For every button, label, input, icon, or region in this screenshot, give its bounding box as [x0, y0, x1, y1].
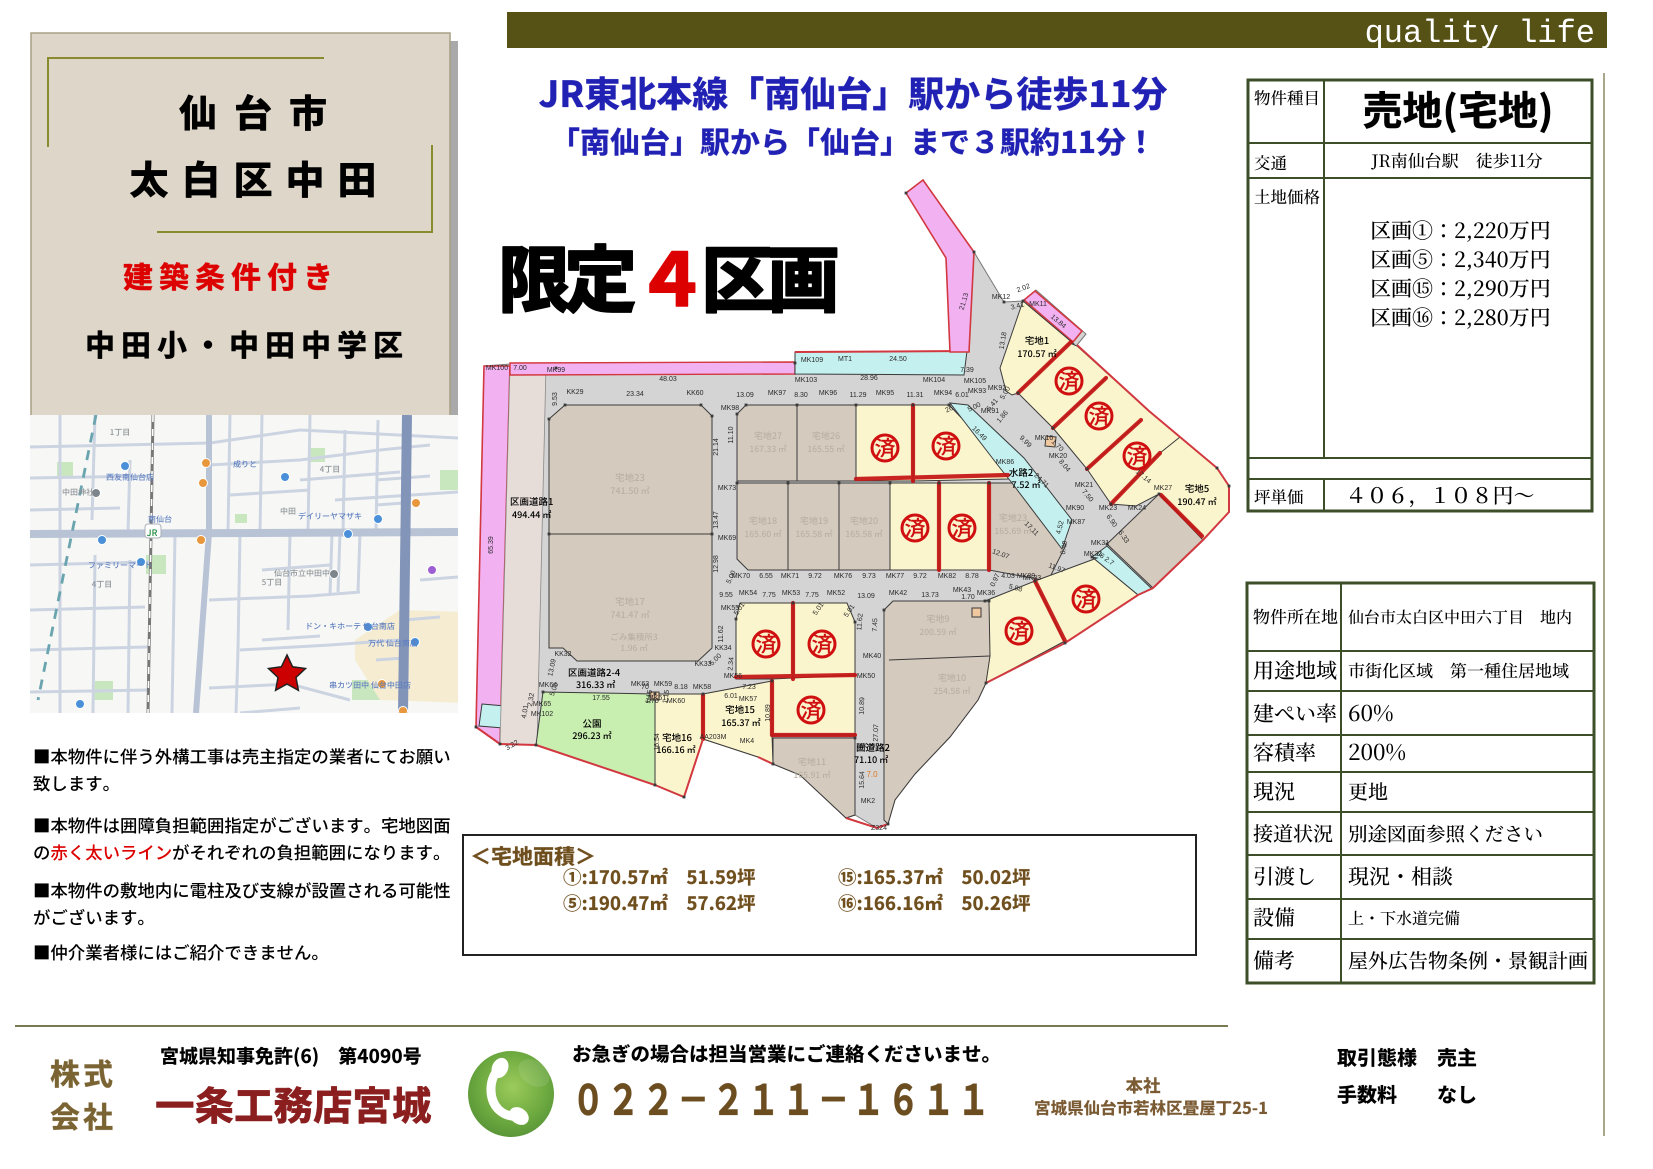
svg-text:21.14: 21.14 — [713, 438, 720, 456]
svg-text:MK4: MK4 — [740, 738, 755, 745]
svg-text:MK73: MK73 — [718, 485, 736, 492]
svg-text:MK99: MK99 — [547, 367, 565, 374]
svg-text:11.62: 11.62 — [856, 613, 864, 631]
svg-text:7.75: 7.75 — [805, 592, 819, 599]
svg-text:MK90: MK90 — [1066, 505, 1084, 512]
svg-text:MK54: MK54 — [739, 590, 757, 597]
svg-text:16.54: 16.54 — [654, 733, 661, 751]
svg-text:MK71: MK71 — [781, 573, 799, 580]
svg-text:12.98: 12.98 — [713, 555, 720, 573]
svg-text:6.01: 6.01 — [955, 392, 969, 399]
svg-text:7.0: 7.0 — [866, 770, 878, 779]
svg-text:MK87: MK87 — [1067, 519, 1085, 526]
svg-text:MK24: MK24 — [1128, 505, 1146, 512]
svg-text:13.09: 13.09 — [736, 392, 754, 399]
svg-text:MK42: MK42 — [889, 590, 907, 597]
svg-text:1.70: 1.70 — [961, 594, 975, 601]
svg-text:11.10: 11.10 — [728, 426, 735, 443]
svg-text:MK21: MK21 — [1075, 482, 1093, 489]
svg-text:KK33: KK33 — [694, 661, 711, 668]
svg-text:MK59: MK59 — [654, 681, 672, 688]
svg-text:10.89: 10.89 — [765, 704, 772, 722]
svg-text:8.78: 8.78 — [965, 573, 979, 580]
svg-text:MK58: MK58 — [693, 684, 711, 691]
svg-text:8.18: 8.18 — [674, 684, 688, 691]
svg-text:11.62: 11.62 — [718, 625, 725, 642]
svg-text:7.00: 7.00 — [513, 365, 527, 372]
svg-text:MK20: MK20 — [1049, 453, 1067, 460]
svg-text:7.75: 7.75 — [762, 592, 776, 599]
svg-text:KK32: KK32 — [554, 651, 571, 658]
svg-text:quality life: quality life — [1365, 15, 1595, 52]
svg-text:MK11: MK11 — [1029, 301, 1047, 308]
svg-text:MK65: MK65 — [533, 701, 551, 708]
svg-text:AA203M: AA203M — [700, 734, 727, 741]
svg-text:MK63: MK63 — [631, 681, 649, 688]
svg-text:65.39: 65.39 — [488, 536, 495, 554]
svg-text:KK29: KK29 — [566, 389, 583, 396]
svg-text:MK95: MK95 — [876, 390, 894, 397]
svg-text:9.72: 9.72 — [913, 573, 927, 580]
svg-text:MK76: MK76 — [834, 573, 852, 580]
svg-text:MK86: MK86 — [996, 459, 1014, 466]
svg-text:MK93: MK93 — [968, 388, 986, 395]
svg-text:MK100: MK100 — [486, 365, 508, 372]
svg-text:17.55: 17.55 — [592, 695, 610, 702]
svg-text:11.31: 11.31 — [907, 392, 924, 399]
svg-text:9.53: 9.53 — [552, 392, 559, 406]
svg-text:MK45: MK45 — [857, 743, 875, 750]
svg-text:MK33: MK33 — [1023, 575, 1041, 582]
svg-text:2.34: 2.34 — [727, 657, 735, 671]
svg-text:24.50: 24.50 — [889, 356, 907, 363]
svg-text:MK53: MK53 — [782, 590, 800, 597]
svg-text:MK36: MK36 — [977, 590, 995, 597]
svg-text:MK12: MK12 — [992, 294, 1010, 301]
svg-text:MK105: MK105 — [964, 378, 986, 385]
svg-text:9.55: 9.55 — [719, 592, 733, 599]
svg-text:MK56: MK56 — [724, 673, 742, 680]
svg-text:MK16: MK16 — [1035, 435, 1053, 442]
svg-text:27.07: 27.07 — [873, 724, 881, 742]
svg-text:MK43: MK43 — [953, 587, 971, 594]
svg-text:MK50: MK50 — [857, 673, 875, 680]
svg-text:2.02: 2.02 — [1016, 283, 1031, 294]
svg-text:MK82: MK82 — [938, 573, 956, 580]
svg-text:MK40: MK40 — [863, 653, 881, 660]
svg-text:MK103: MK103 — [795, 377, 817, 384]
svg-text:MK98: MK98 — [721, 405, 739, 412]
svg-text:13.73: 13.73 — [921, 592, 939, 599]
svg-text:MK57: MK57 — [739, 696, 757, 703]
svg-text:MK97: MK97 — [768, 390, 786, 397]
svg-text:Z324: Z324 — [871, 825, 887, 832]
svg-text:MK69: MK69 — [718, 535, 736, 542]
svg-text:MK64: MK64 — [539, 682, 557, 689]
svg-text:7.45: 7.45 — [872, 618, 879, 632]
svg-text:48.03: 48.03 — [659, 376, 677, 383]
svg-text:11.29: 11.29 — [850, 392, 867, 399]
svg-text:13.47: 13.47 — [713, 511, 720, 529]
svg-text:13.09: 13.09 — [857, 593, 875, 600]
svg-text:6.01: 6.01 — [724, 693, 738, 700]
svg-text:MK96: MK96 — [819, 390, 837, 397]
svg-text:MK27: MK27 — [1154, 485, 1172, 492]
svg-text:7.23: 7.23 — [742, 684, 756, 691]
svg-text:MK70: MK70 — [732, 573, 750, 580]
svg-text:MK31: MK31 — [1091, 540, 1109, 547]
svg-text:23.34: 23.34 — [626, 391, 644, 398]
svg-text:10.89: 10.89 — [859, 697, 867, 715]
svg-text:15.64: 15.64 — [859, 771, 867, 789]
svg-text:8.30: 8.30 — [794, 392, 808, 399]
svg-text:MK104: MK104 — [923, 377, 945, 384]
svg-text:KK34: KK34 — [714, 645, 731, 652]
svg-text:7.39: 7.39 — [960, 367, 974, 374]
svg-text:28.96: 28.96 — [860, 375, 878, 382]
svg-text:MT1: MT1 — [838, 356, 852, 363]
svg-text:MK23: MK23 — [1099, 505, 1117, 512]
svg-text:MK109: MK109 — [801, 357, 823, 364]
svg-text:MK2: MK2 — [861, 798, 876, 805]
svg-text:MK77: MK77 — [886, 573, 904, 580]
svg-text:MK102: MK102 — [531, 711, 553, 718]
svg-text:MK52: MK52 — [827, 590, 845, 597]
svg-text:4.03: 4.03 — [1001, 573, 1015, 580]
svg-text:6.55: 6.55 — [759, 573, 773, 580]
svg-text:9.72: 9.72 — [808, 573, 822, 580]
svg-text:KK60: KK60 — [686, 390, 703, 397]
svg-text:9.73: 9.73 — [862, 573, 876, 580]
svg-text:MK94: MK94 — [934, 390, 952, 397]
